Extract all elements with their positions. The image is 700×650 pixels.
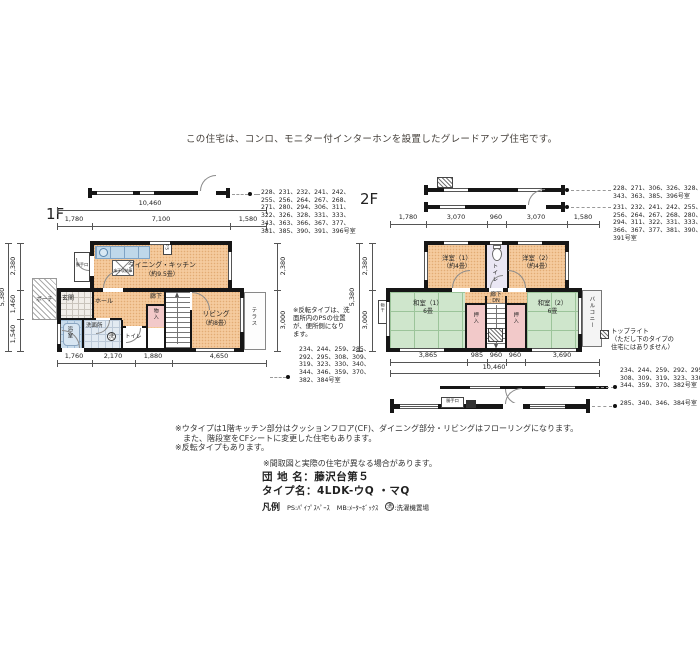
door-opening bbox=[103, 288, 123, 292]
window bbox=[444, 188, 468, 192]
window bbox=[470, 386, 500, 389]
door-opening bbox=[452, 288, 470, 292]
leader-line bbox=[596, 387, 614, 388]
label-ps: PS bbox=[164, 244, 169, 251]
kitchen-sink bbox=[99, 248, 108, 257]
leader-dot bbox=[613, 385, 617, 389]
partition bbox=[465, 303, 467, 348]
wall bbox=[586, 399, 590, 413]
dim-2f-top-4: 1,580 bbox=[565, 213, 601, 221]
room-label-porch: ポーチ bbox=[34, 297, 55, 303]
floor-label-2f: 2F bbox=[360, 191, 378, 208]
landing bbox=[148, 328, 164, 349]
partition bbox=[60, 318, 122, 320]
leader-line bbox=[592, 406, 612, 407]
leader-dot bbox=[613, 404, 617, 408]
leader-dot bbox=[286, 375, 290, 379]
leader-dot bbox=[565, 188, 569, 192]
legend-row: 凡例 PS:ﾊﾟｲﾌﾟｽﾍﾟｰｽ MB:ﾒｰﾀｰﾎﾞｯｸｽ 洗:洗濯機置場 bbox=[262, 500, 429, 513]
window bbox=[386, 302, 390, 336]
legend-ps: PS:ﾊﾟｲﾌﾟｽﾍﾟｰｽ bbox=[287, 502, 330, 512]
room-size-yo2: （約4畳） bbox=[508, 264, 566, 271]
room-number-list-2f-a: 228、271、306、326、328、 343、363、385、396号室 bbox=[613, 185, 700, 200]
partition bbox=[146, 304, 166, 306]
label-dn: DN bbox=[482, 299, 510, 305]
dim-1f-bottom-1: 2,170 bbox=[95, 352, 131, 360]
partition bbox=[121, 320, 123, 349]
dim-line bbox=[17, 243, 24, 352]
dim-1f-bottom-2: 1,880 bbox=[135, 352, 171, 360]
toplight-legend-text: トップライト （ただし下のタイプの 住宅にはありません） bbox=[611, 328, 674, 353]
room-label-wa2: 和室（2） bbox=[527, 300, 578, 307]
room-number-list-2f-bottom-b: 285、340、346、384号室 bbox=[620, 400, 697, 408]
room-label-yo2: 洋室（2） bbox=[508, 255, 566, 262]
room-number-list-2f-b: 231、232、241、242、255、 256、264、267、268、280… bbox=[613, 204, 700, 243]
room-label-toilet-2f: トイレ bbox=[491, 263, 497, 283]
dim-1f-right-1: 3,000 bbox=[279, 305, 287, 335]
wall bbox=[57, 288, 244, 292]
leader-dot bbox=[248, 192, 252, 196]
dim-line bbox=[369, 243, 376, 352]
partition bbox=[164, 292, 166, 350]
dim-2f-top-0: 1,780 bbox=[390, 213, 426, 221]
leader-line bbox=[232, 194, 248, 195]
dim-1f-bottom-0: 1,760 bbox=[56, 352, 92, 360]
window bbox=[518, 241, 542, 245]
washer-symbol: 洗 bbox=[107, 332, 116, 341]
dim-total-top-1f: 10,460 bbox=[132, 199, 168, 207]
room-size-living: （約8畳） bbox=[193, 321, 239, 328]
dim-line bbox=[356, 243, 363, 352]
washer-symbol-legend: 洗 bbox=[385, 502, 394, 511]
toplight-symbol bbox=[437, 177, 453, 188]
dim-1f-bottom-3: 4,650 bbox=[201, 352, 237, 360]
dim-line bbox=[5, 243, 12, 352]
legend-mb: MB:ﾒｰﾀｰﾎﾞｯｸｽ bbox=[337, 502, 379, 512]
room-size-yo1: （約4畳） bbox=[428, 264, 486, 271]
room-label-hall: ホール bbox=[95, 299, 113, 306]
toilet-tank bbox=[493, 245, 501, 249]
stair-line bbox=[177, 296, 178, 344]
door-opening bbox=[90, 256, 94, 276]
legend-label: 凡例 bbox=[262, 500, 280, 513]
partition bbox=[92, 290, 94, 320]
dim-2f-bottom-4: 3,690 bbox=[544, 351, 580, 359]
window bbox=[140, 191, 154, 195]
grade-up-note: この住宅は、コンロ、モニター付インターホンを設置したグレードアップ住宅です。 bbox=[186, 135, 557, 146]
partition bbox=[82, 320, 84, 349]
room-label-washroom: 洗面所 bbox=[86, 323, 103, 329]
room-label-toilet: トイレ bbox=[125, 334, 142, 340]
dim-line bbox=[57, 360, 267, 367]
dim-1f-top-1: 7,100 bbox=[143, 215, 179, 223]
type-name: タイプ名：4LDK-ウQ ・マQ bbox=[262, 485, 410, 497]
window bbox=[578, 298, 582, 334]
room-label-living: リビング bbox=[193, 311, 239, 319]
room-label-bath: 浴室 bbox=[66, 326, 72, 339]
window bbox=[490, 241, 502, 245]
dim-line bbox=[390, 221, 600, 228]
wall bbox=[440, 386, 608, 389]
window bbox=[400, 404, 438, 409]
room-label-kitchen-door: 勝手口 bbox=[74, 263, 90, 268]
leader-line bbox=[571, 207, 611, 208]
dim-line bbox=[57, 207, 267, 214]
window bbox=[530, 404, 565, 409]
toplight-legend-icon bbox=[600, 330, 609, 339]
room-label-storage: 物入 bbox=[152, 308, 158, 320]
legend-sen-group: 洗:洗濯機置場 bbox=[385, 502, 429, 512]
strip-dark-box bbox=[466, 400, 476, 408]
toplight-over-stairs bbox=[488, 328, 503, 342]
wall bbox=[226, 188, 230, 198]
legend-sen-text: :洗濯機置場 bbox=[394, 502, 429, 512]
dim-1f-left-total: 5,380 bbox=[0, 282, 6, 312]
partition bbox=[146, 304, 148, 350]
stair-arrow bbox=[175, 292, 179, 297]
room-label-closet2: 押入 bbox=[512, 312, 518, 324]
room-label-corridor: 廊下 bbox=[150, 294, 162, 301]
leader-line bbox=[571, 190, 611, 191]
dim-2f-left-total: 5,380 bbox=[348, 282, 356, 312]
door-arc bbox=[200, 175, 216, 191]
room-label-terrace: テラス bbox=[250, 307, 256, 327]
dim-2f-bottom-3: 960 bbox=[504, 351, 526, 359]
staircase bbox=[166, 292, 190, 349]
room-number-list-1f: 228、231、232、241、242、 255、256、264、267、268… bbox=[261, 189, 356, 235]
window bbox=[97, 191, 133, 195]
dim-2f-bottom-0: 3,865 bbox=[410, 351, 446, 359]
label-underfloor-storage: 床下収納庫 bbox=[112, 269, 134, 273]
leader-line bbox=[254, 194, 260, 195]
window bbox=[240, 298, 244, 332]
dim-2f-top-2: 960 bbox=[485, 213, 507, 221]
window bbox=[440, 205, 465, 209]
floorplan-sheet: この住宅は、コンロ、モニター付インターホンを設置したグレードアップ住宅です。 1… bbox=[0, 0, 700, 650]
dim-2f-top-3: 3,070 bbox=[518, 213, 554, 221]
room-size-wa1: 6畳 bbox=[403, 309, 453, 316]
dim-line bbox=[57, 223, 267, 230]
madorizu-note: ※間取図と実際の住宅が異なる場合があります。 bbox=[263, 459, 437, 468]
room-size-wa2: 6畳 bbox=[527, 309, 578, 316]
strip-door-label: 勝手口 bbox=[441, 399, 464, 404]
leader-dot bbox=[565, 205, 569, 209]
window bbox=[57, 324, 61, 344]
door-opening bbox=[503, 403, 523, 410]
dim-line bbox=[390, 370, 600, 377]
room-label-wa1: 和室（1） bbox=[403, 300, 453, 307]
room-label-balcony: バルコニー bbox=[588, 296, 594, 329]
note-hanten: ※反転タイプは、洗 面所内のPSの位置 が、便所側になり ます。 bbox=[293, 306, 349, 338]
room-label-yo1: 洋室（1） bbox=[428, 255, 486, 262]
room-label-closet1: 押入 bbox=[472, 312, 478, 324]
type-notes: ※ウタイプは1階キッチン部分はクッションフロア(CF)、ダイニング部分・リビング… bbox=[175, 424, 578, 453]
label-drying-rack: 物干 bbox=[380, 303, 385, 313]
window bbox=[444, 241, 468, 245]
dim-2f-top-1: 3,070 bbox=[438, 213, 474, 221]
room-label-entrance: 玄関 bbox=[62, 296, 74, 303]
window bbox=[545, 386, 575, 389]
room-number-list-2f-bottom-a: 234、244、259、292、295、 308、309、319、323、330… bbox=[620, 367, 700, 390]
dim-1f-top-0: 1,780 bbox=[56, 215, 92, 223]
dim-1f-right-0: 2,380 bbox=[279, 251, 287, 281]
window bbox=[228, 252, 232, 280]
danchi-name: 団 地 名：藤沢台第５ bbox=[262, 471, 369, 483]
leader-line bbox=[270, 377, 286, 378]
